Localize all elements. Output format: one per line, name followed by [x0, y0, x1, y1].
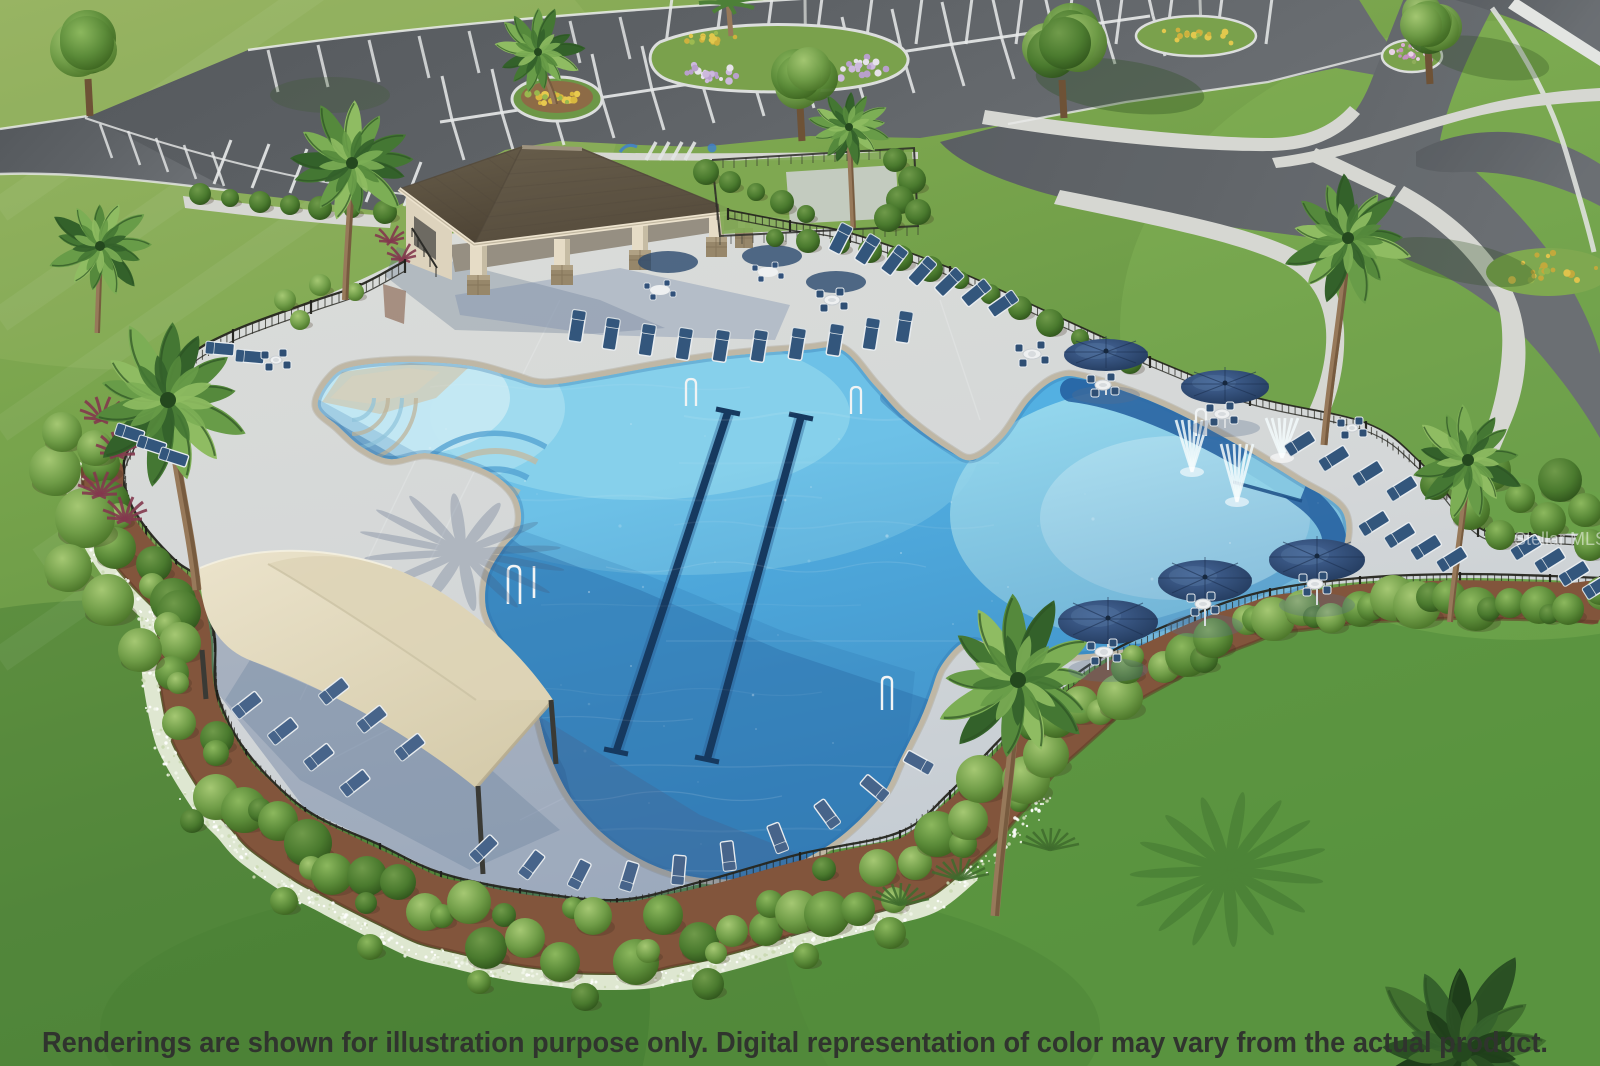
svg-text:Stellar MLS: Stellar MLS [1514, 529, 1600, 549]
svg-text:Renderings are shown for illus: Renderings are shown for illustration pu… [42, 1027, 1548, 1059]
